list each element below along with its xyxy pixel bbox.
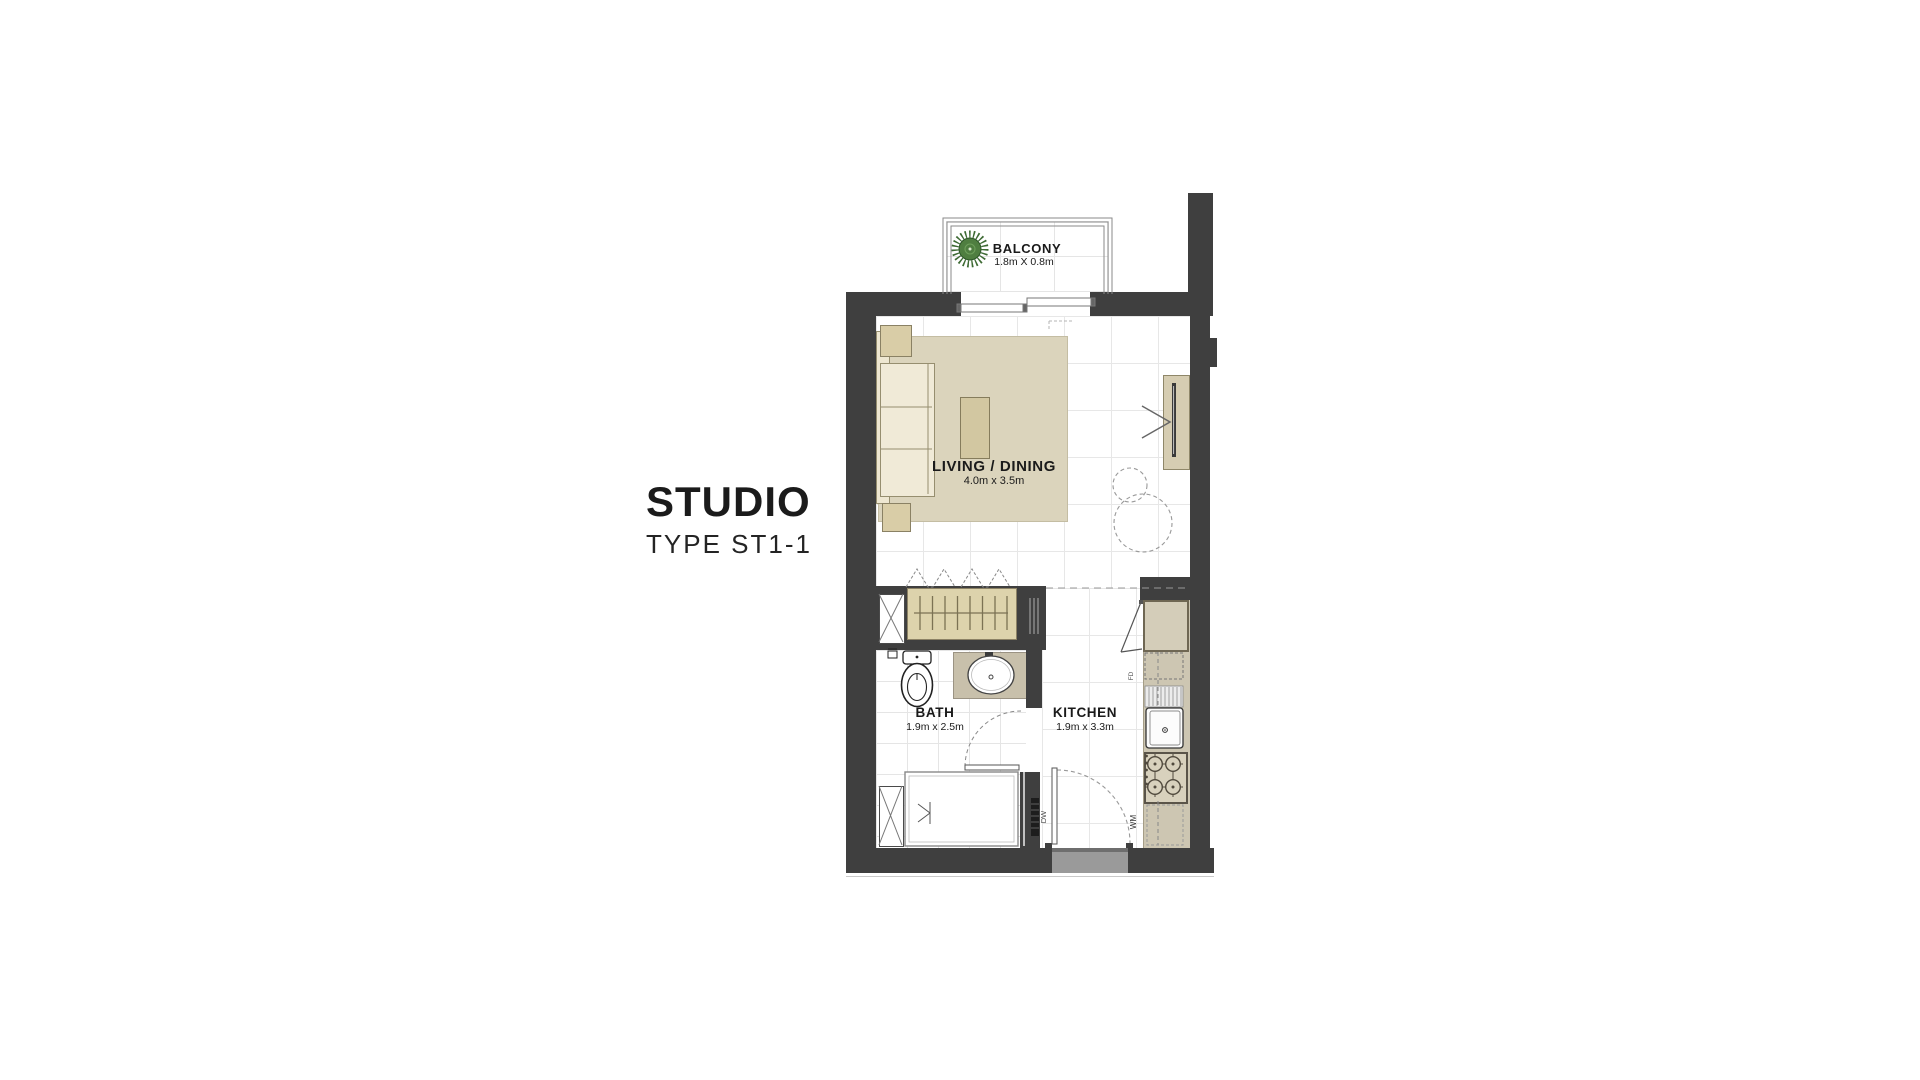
balcony-label: BALCONY [993, 241, 1061, 256]
sink-drainboard [1145, 686, 1183, 707]
kitchen-dimensions: 1.9m x 3.3m [1056, 721, 1114, 733]
stove-burners [1145, 754, 1183, 797]
bath-door [965, 711, 1021, 770]
bath-label: BATH [916, 705, 955, 720]
washing-machine-label: WM [1129, 807, 1139, 837]
tv-screen [1172, 383, 1176, 457]
kitchen-sink [1146, 708, 1183, 748]
floor-drain-label: FD [1128, 661, 1138, 691]
floor-plan-page: STUDIO TYPE ST1-1 [0, 0, 1920, 1080]
dishwasher-outline [1145, 653, 1183, 679]
sliding-door [957, 298, 1095, 312]
fridge-door-swing [1121, 600, 1143, 652]
hanging-clothes [906, 569, 1010, 587]
duct-louvres [1030, 598, 1038, 634]
plan-subtitle: TYPE ST1-1 [646, 529, 812, 560]
plan-title-block: STUDIO TYPE ST1-1 [646, 480, 812, 560]
balcony-dimensions: 1.8m X 0.8m [994, 256, 1054, 268]
dining-set [1113, 468, 1172, 552]
floor-plan: BALCONY 1.8m X 0.8m LIVING / DINING 4.0m… [840, 190, 1220, 890]
door-swing-marks [1049, 321, 1073, 329]
dishwasher-label: DW [1039, 802, 1049, 832]
view-arrow [1142, 406, 1170, 438]
plant-icon [955, 234, 985, 264]
toilet [902, 651, 933, 707]
sofa-seams [881, 364, 932, 494]
bathroom-basin [968, 652, 1014, 694]
entry-door [1052, 768, 1130, 844]
kitchen-label: KITCHEN [1053, 705, 1117, 720]
plan-lineart [840, 190, 1220, 890]
bath-dimensions: 1.9m x 2.5m [906, 721, 964, 733]
plan-title: STUDIO [646, 480, 812, 524]
living-dining-label: LIVING / DINING [932, 458, 1056, 475]
shaft-x-marks [879, 594, 903, 845]
living-dining-dimensions: 4.0m x 3.5m [964, 475, 1025, 487]
bathtub [905, 772, 1018, 846]
toilet-paper-holder [888, 649, 897, 658]
wardrobe-rail [914, 596, 1008, 630]
entry-duct [1024, 772, 1039, 846]
